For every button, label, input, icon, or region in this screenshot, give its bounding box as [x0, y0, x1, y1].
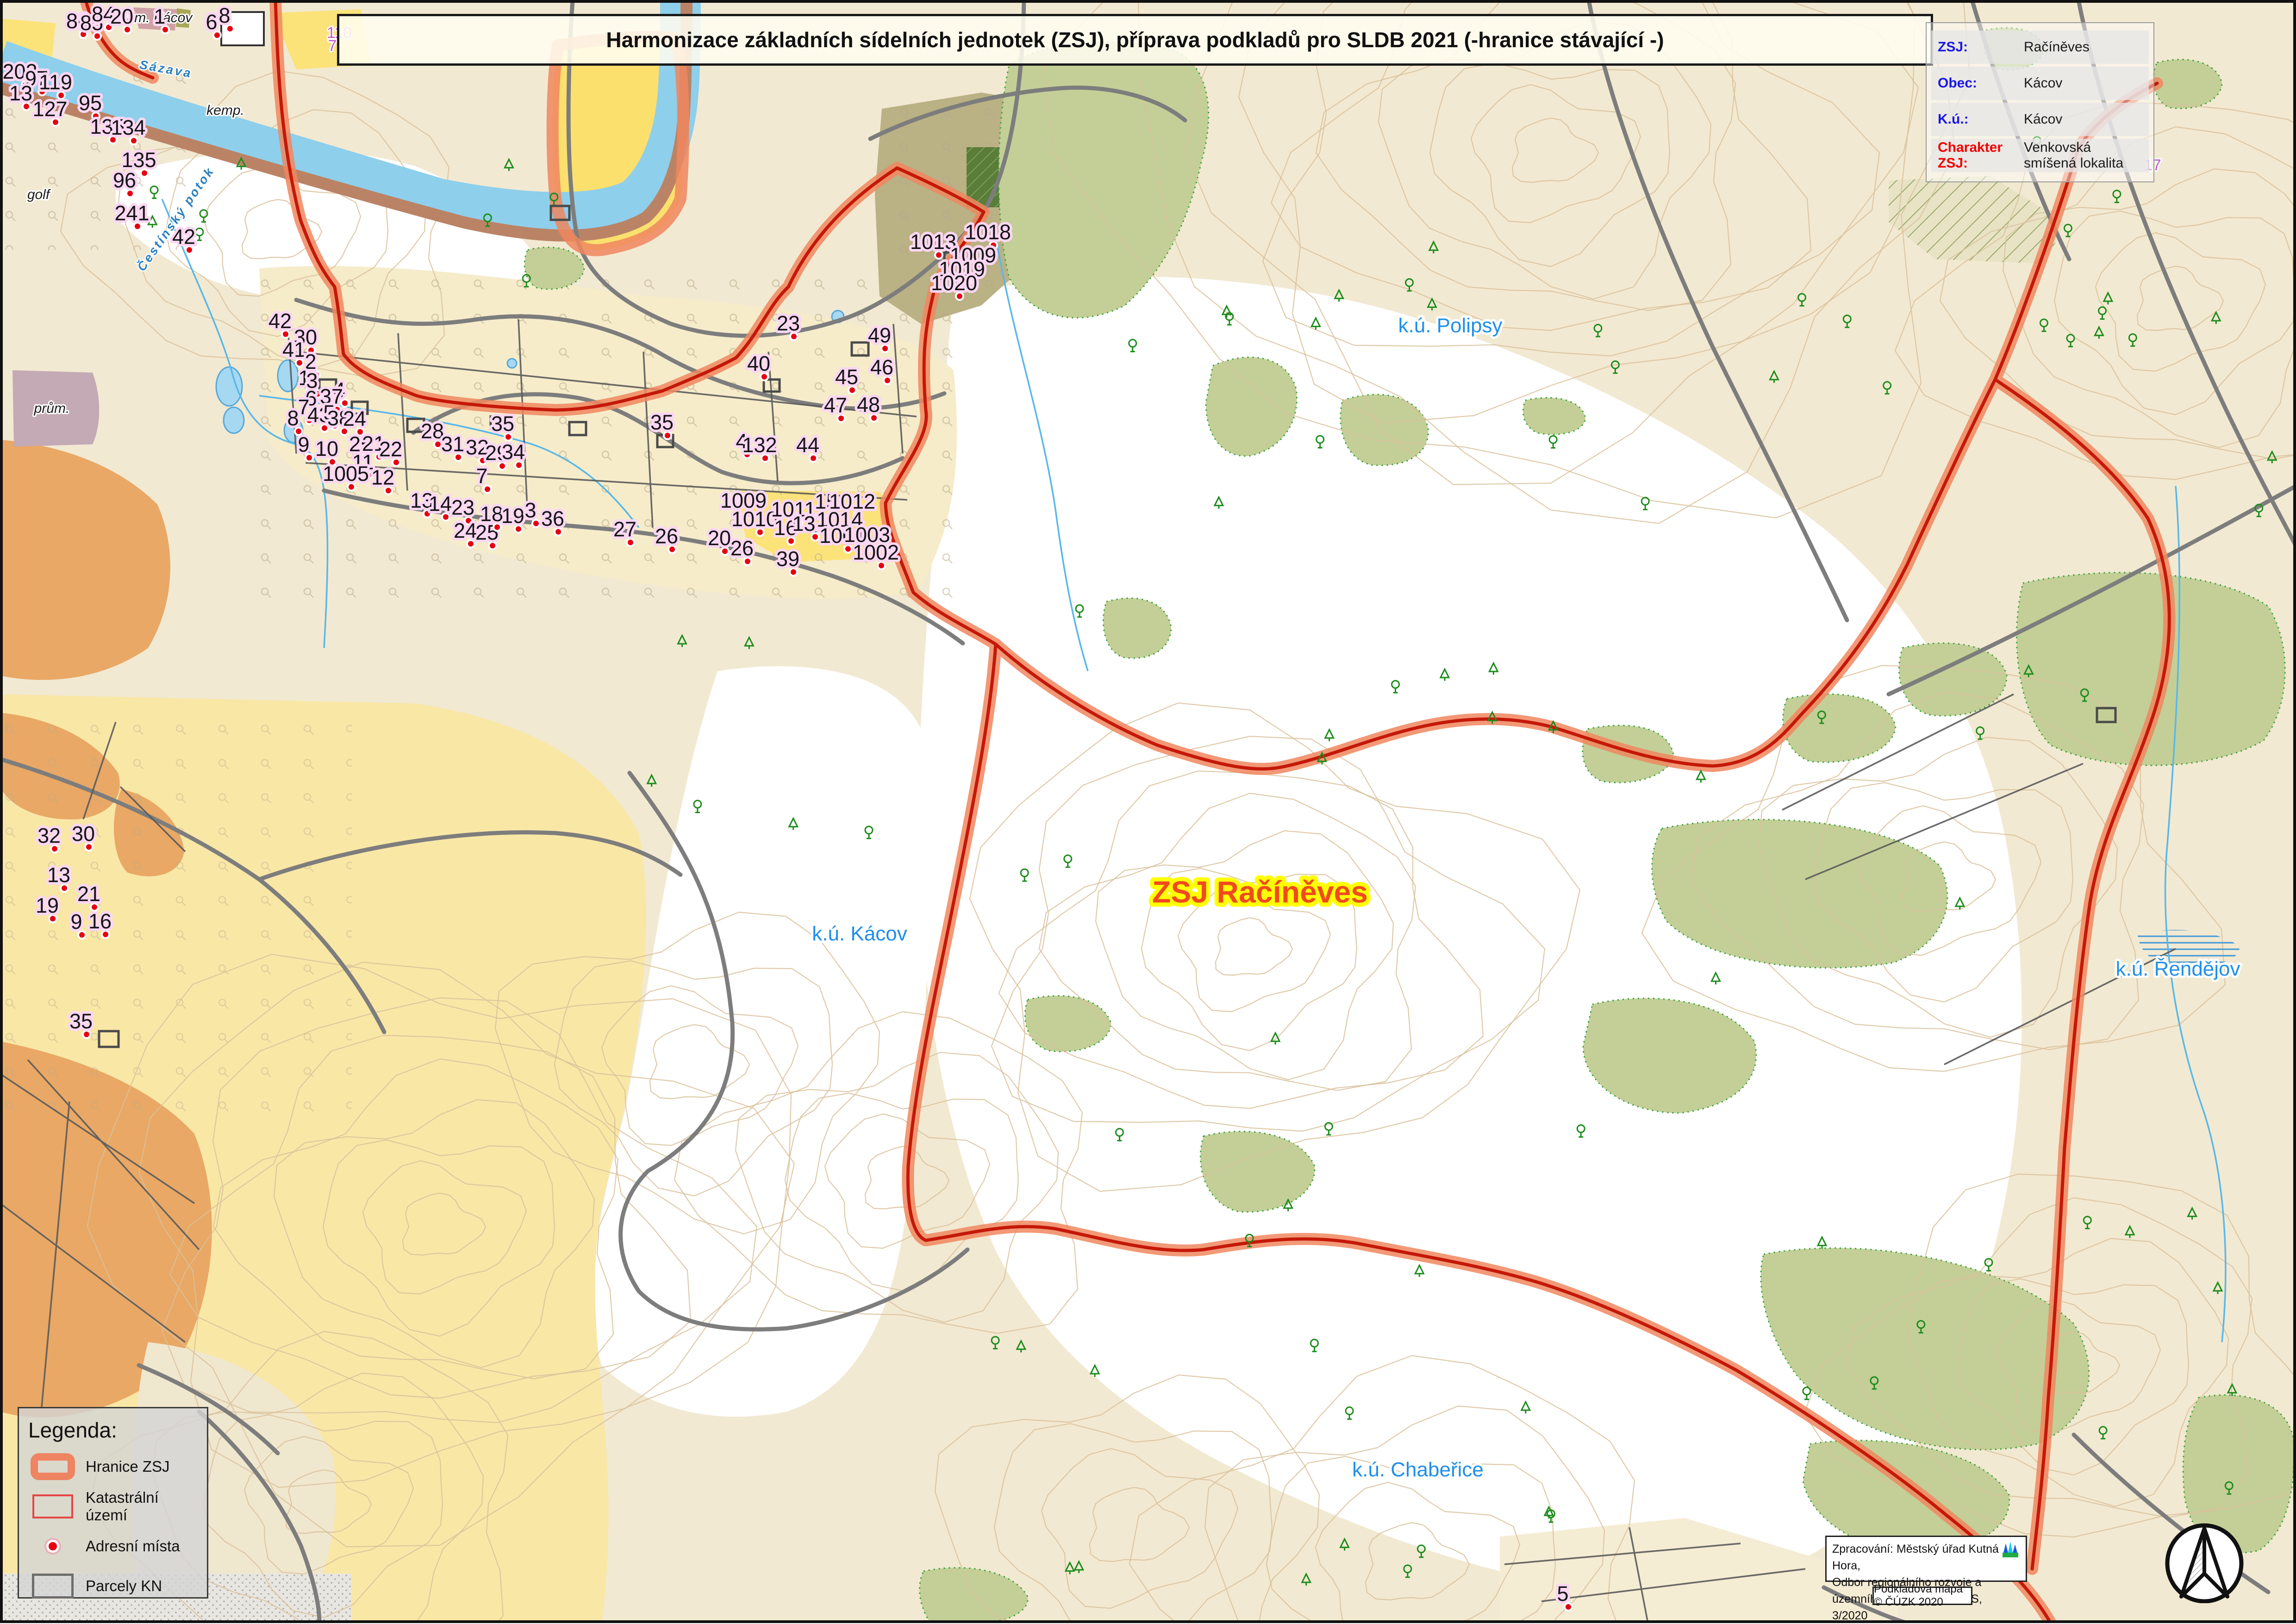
address-point-number: 18: [480, 502, 503, 526]
cadastre-border-icon: [32, 1494, 73, 1518]
address-point-number: 26: [730, 536, 754, 560]
address-point-icon: [49, 1542, 57, 1550]
address-point-number: 14: [429, 492, 452, 516]
place-label: prům.: [34, 401, 70, 416]
legend-title: Legenda:: [28, 1418, 199, 1443]
address-point-number: 49: [868, 324, 891, 347]
address-point-number: 45: [835, 365, 858, 389]
info-label: K.ú.:: [1938, 112, 2024, 127]
address-point-number: 19: [36, 894, 59, 917]
zsj-info-box: ZSJ:RačíněvesObec:KácovK.ú.:KácovCharakt…: [1926, 22, 2154, 182]
legend-item-label: Hranice ZSJ: [86, 1458, 170, 1475]
ku-label: k.ú. Kácov: [812, 922, 907, 945]
address-point-number: 35: [491, 412, 514, 436]
map-title-bar: Harmonizace základních sídelních jednote…: [337, 14, 1933, 66]
address-point-number: 46: [870, 355, 893, 379]
address-point-number: 8: [218, 4, 230, 27]
address-point-number: 132: [742, 433, 777, 457]
map-canvas: zám. Kácovkemp.golfprům.ch.SázavaČestíns…: [0, 0, 2296, 1623]
map-title: Harmonizace základních sídelních jednote…: [606, 27, 1664, 52]
address-point-number: 24: [454, 519, 477, 542]
address-point-number: 39: [776, 547, 799, 571]
address-point-number: 27: [613, 517, 636, 541]
info-value: Račíněves: [2024, 39, 2090, 55]
parcel-border-icon: [32, 1574, 74, 1599]
address-point-number: 8: [287, 406, 299, 430]
address-point-number: 96: [113, 168, 136, 192]
legend-item-label: Adresní místa: [86, 1537, 180, 1555]
address-point-number: 47: [824, 393, 847, 417]
address-point-number: 35: [69, 1009, 93, 1033]
address-point-number: 41: [282, 338, 306, 361]
address-point-number: 42: [268, 309, 292, 333]
address-point-number: 48: [857, 393, 880, 417]
address-point-number: 13: [47, 863, 70, 887]
map-document: zám. Kácovkemp.golfprům.ch.SázavaČestíns…: [0, 0, 2296, 1623]
place-label: golf: [27, 187, 51, 202]
legend-item-label: Parcely KN: [86, 1577, 162, 1595]
address-point-number: 28: [421, 419, 444, 443]
address-point-number: 31: [441, 432, 464, 456]
address-point-number: 20: [110, 5, 133, 28]
address-point-number: 7: [476, 464, 487, 488]
address-point-number: 95: [79, 91, 102, 115]
address-point-number: 6: [206, 10, 217, 34]
address-point-number: 134: [111, 116, 145, 139]
north-arrow: [2165, 1522, 2244, 1605]
address-point-number: 30: [72, 822, 95, 846]
address-point-number: 44: [796, 433, 819, 457]
address-point-number: 12: [371, 466, 394, 489]
info-value: Kácov: [2024, 112, 2062, 127]
info-row: Obec:Kácov: [1931, 67, 2149, 100]
address-point-number: 21: [77, 882, 100, 906]
address-point-number: 241: [114, 201, 149, 225]
address-point-number: 5: [1557, 1582, 1568, 1605]
legend: Legenda: Hranice ZSJKatastrální územíAdr…: [18, 1407, 208, 1599]
address-point-number: 1020: [931, 271, 977, 295]
address-point-number: 23: [451, 496, 474, 519]
address-point-number: 32: [37, 824, 61, 847]
info-value: Kácov: [2024, 75, 2062, 91]
info-row: ZSJ:Račíněves: [1931, 31, 2149, 64]
address-point-number: 1: [154, 5, 165, 28]
address-point-number: 42: [172, 225, 195, 249]
attribution-box: Zpracování: Městský úřad Kutná Hora, Odb…: [1825, 1536, 2027, 1582]
address-point-number: 16: [88, 909, 112, 933]
legend-item: Katastrální území: [27, 1492, 199, 1521]
zsj-area-label: ZSJ Račíněves: [1152, 875, 1368, 909]
address-point-number: 9: [298, 433, 309, 456]
address-point-number: 127: [32, 97, 67, 121]
info-value: Venkovská smíšená lokalita: [2024, 140, 2142, 171]
ku-label: k.ú. Řendějov: [2115, 958, 2240, 980]
address-point-number: 3: [524, 498, 536, 522]
address-point-number: 9: [70, 910, 82, 933]
parcel-number-label: 7: [328, 37, 337, 55]
address-point-number: 26: [655, 524, 678, 548]
info-label: Obec:: [1938, 75, 2024, 91]
address-point-number: 23: [777, 311, 800, 335]
address-point-number: 35: [650, 411, 674, 434]
address-point-number: 24: [343, 407, 366, 430]
zsj-border-icon: [31, 1453, 75, 1480]
info-row: Charakter ZSJ:Venkovská smíšená lokalita: [1931, 139, 2149, 172]
info-row: K.ú.:Kácov: [1931, 103, 2149, 136]
address-point-number: 119: [39, 70, 72, 94]
info-label: ZSJ:: [1938, 39, 2024, 55]
legend-item-label: Katastrální území: [86, 1489, 199, 1524]
ku-label: k.ú. Chabeřice: [1352, 1458, 1484, 1481]
legend-item: Parcely KN: [27, 1571, 199, 1601]
address-point-number: 34: [502, 440, 525, 464]
legend-item: Hranice ZSJ: [27, 1452, 199, 1481]
basemap-attribution-box: Podkladová mapa © ČÚZK 2020: [1872, 1587, 1972, 1605]
address-point-number: 1002: [853, 541, 899, 564]
address-point-number: 40: [747, 352, 770, 375]
ku-label: k.ú. Polipsy: [1398, 314, 1503, 337]
attribution-line1: Zpracování: Městský úřad Kutná Hora,: [1832, 1541, 2020, 1574]
address-point-number: 22: [379, 437, 402, 461]
legend-item: Adresní místa: [27, 1531, 199, 1561]
address-point-number: 1005: [323, 462, 369, 485]
address-point-number: 10: [315, 437, 338, 460]
address-point-number: 13: [9, 81, 32, 105]
kutna-hora-logo-icon: [2000, 1541, 2021, 1565]
place-label: kemp.: [206, 103, 244, 118]
basemap-attribution: Podkladová mapa © ČÚZK 2020: [1874, 1583, 1971, 1609]
address-point-number: 36: [541, 507, 564, 530]
address-point-number: 1018: [965, 220, 1011, 244]
address-point-number: 19: [501, 504, 524, 528]
info-label: Charakter ZSJ:: [1938, 140, 2024, 171]
address-point-number: 20: [708, 526, 731, 550]
